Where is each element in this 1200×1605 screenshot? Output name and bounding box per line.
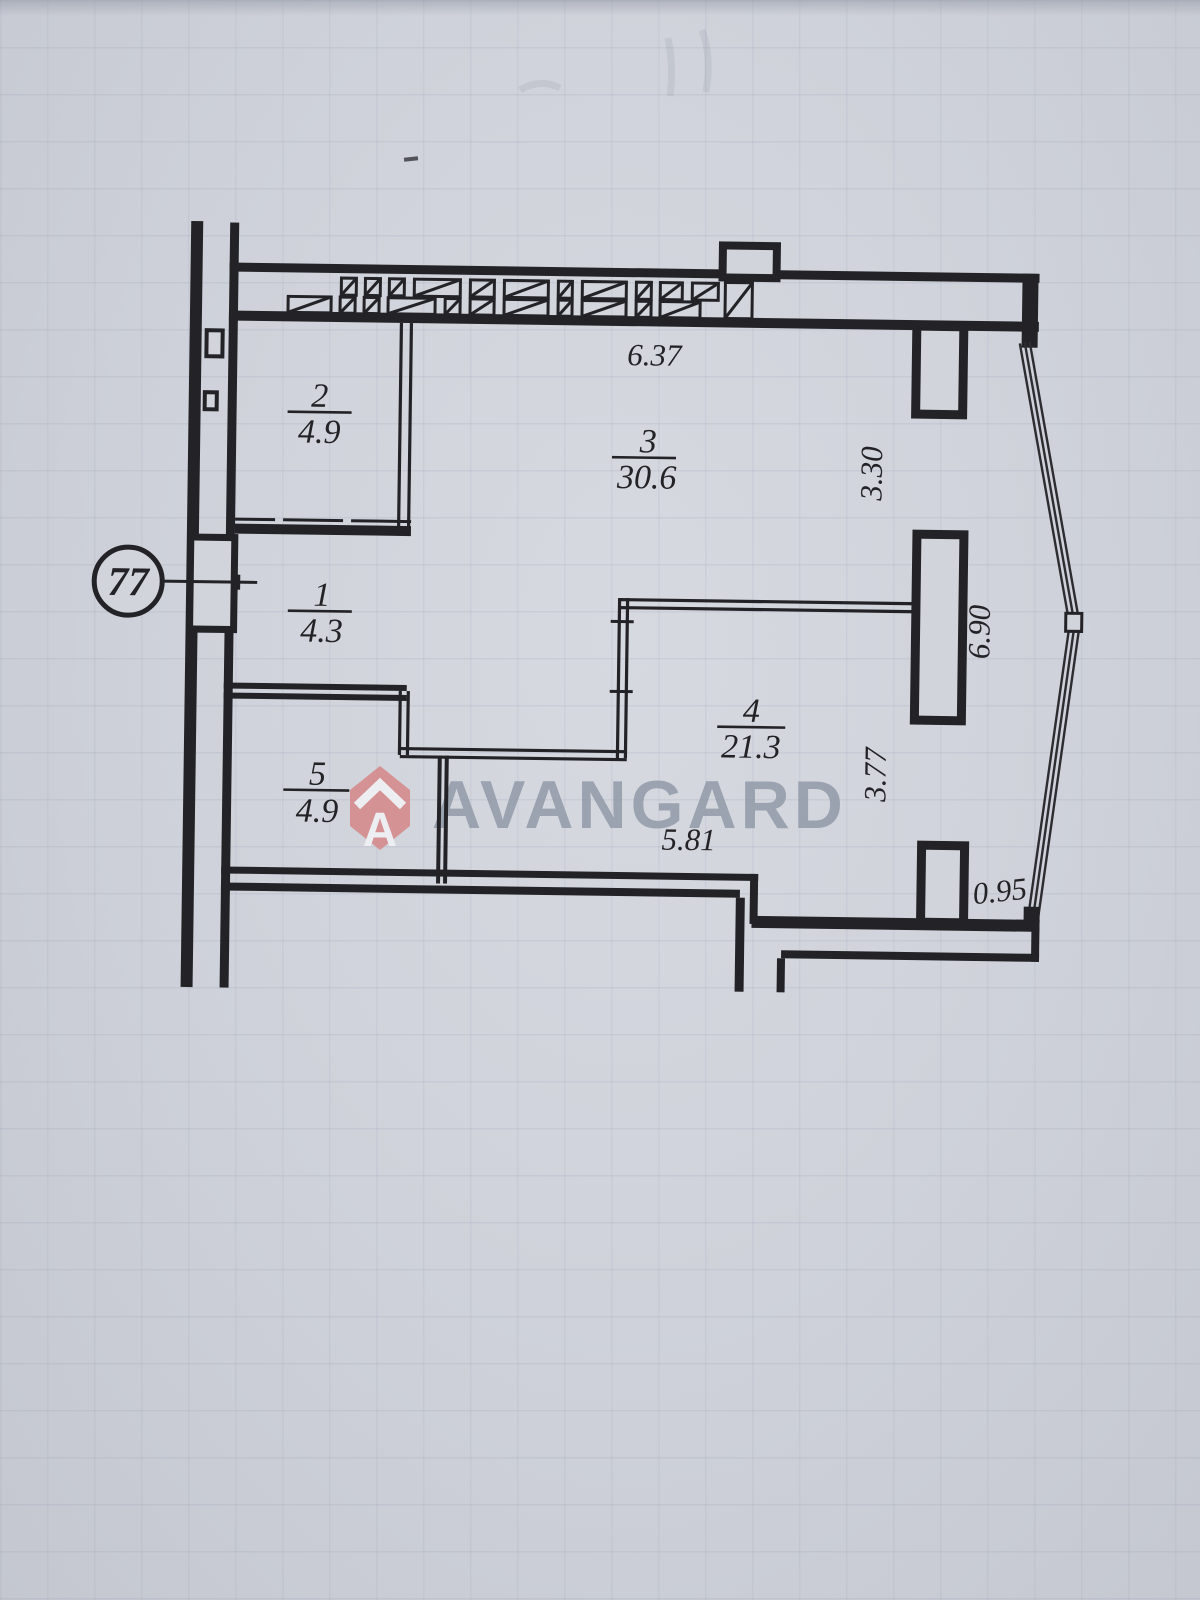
room-3-label: 3 30.6 xyxy=(611,423,677,497)
bottom-wall-lower-line xyxy=(221,882,740,897)
hall-bottom-wall-b xyxy=(400,755,627,761)
room2-bottom-thin-3 xyxy=(351,519,411,523)
dimension-right-lower-height: 3.77 xyxy=(857,746,893,803)
apartment-number: 77 xyxy=(107,558,150,605)
room-4-area: 21.3 xyxy=(721,728,781,766)
dimension-bottom-right-width: 0.95 xyxy=(971,871,1029,912)
dimension-right-window-height: 6.90 xyxy=(961,604,997,659)
room-3-number: 3 xyxy=(638,423,657,460)
room-2-number: 2 xyxy=(311,378,329,415)
room-3-area: 30.6 xyxy=(616,459,677,497)
dimension-bottom-width: 5.81 xyxy=(661,822,716,858)
brand-text: AVANGARD xyxy=(432,767,847,843)
glazing-bottom-node xyxy=(1024,907,1040,922)
room-1-label: 1 4.3 xyxy=(287,576,352,650)
room-5-rule xyxy=(283,788,349,792)
badge-letter: A xyxy=(363,804,398,857)
room2-right-wall-a xyxy=(397,323,403,535)
room-1-number: 1 xyxy=(313,577,331,614)
room-2-area: 4.9 xyxy=(298,413,341,451)
door-jamb-upper xyxy=(611,620,634,623)
bottom-lower-line xyxy=(781,950,1039,962)
plan-drawing: 77 1 4.3 2 4.9 3 30.6 4 21.3 xyxy=(89,220,1088,1000)
room2-bottom-wall xyxy=(235,524,411,536)
stub-wall-1 xyxy=(735,898,745,992)
room-5-number: 5 xyxy=(309,756,327,793)
room1-room5-wall-b xyxy=(224,692,407,701)
dimension-top-width: 6.37 xyxy=(627,337,683,373)
dimension-right-upper-height: 3.30 xyxy=(853,446,889,502)
glazing-mullion-node xyxy=(1066,613,1082,631)
room4-bottom-wall xyxy=(751,916,1039,932)
pen-dash-artifact xyxy=(404,156,418,161)
room-4-label: 4 21.3 xyxy=(717,692,786,766)
top-pier xyxy=(916,326,964,415)
floor-plan: A AVANGARD xyxy=(0,0,1200,1600)
wall-duct-2 xyxy=(205,392,217,409)
door-jamb-lower xyxy=(610,690,633,693)
room2-right-wall-b xyxy=(407,323,413,535)
room-5-label: 5 4.9 xyxy=(283,755,350,830)
house-a-badge-icon: A xyxy=(350,766,410,857)
room-5-area: 4.9 xyxy=(296,792,339,830)
ink-bleed-ghost-marks xyxy=(520,30,708,96)
top-wall-niche xyxy=(723,245,777,278)
bottom-wall-upper-line xyxy=(221,866,758,880)
room3-room4-wall-b xyxy=(620,606,916,613)
top-right-corner xyxy=(1022,274,1039,348)
room3-room4-wall-a xyxy=(620,598,916,605)
room-2-label: 2 4.9 xyxy=(287,377,352,451)
callout-leader-tick xyxy=(237,575,240,590)
room-1-area: 4.3 xyxy=(300,613,343,651)
wall-duct-1 xyxy=(206,330,222,356)
hall-bottom-wall-a xyxy=(400,747,627,753)
room1-room5-wall-a xyxy=(224,682,407,691)
avangard-watermark: A AVANGARD xyxy=(350,766,847,857)
bottom-pier xyxy=(921,845,965,923)
room-4-number: 4 xyxy=(743,693,761,730)
stub-wall-2 xyxy=(777,958,785,992)
room2-bottom-thin-1 xyxy=(235,518,275,522)
right-pier xyxy=(914,534,964,721)
top-outer-wall xyxy=(230,263,1040,283)
room2-bottom-thin-2 xyxy=(283,518,343,522)
photographed-floor-plan-page: A AVANGARD xyxy=(0,0,1200,1600)
